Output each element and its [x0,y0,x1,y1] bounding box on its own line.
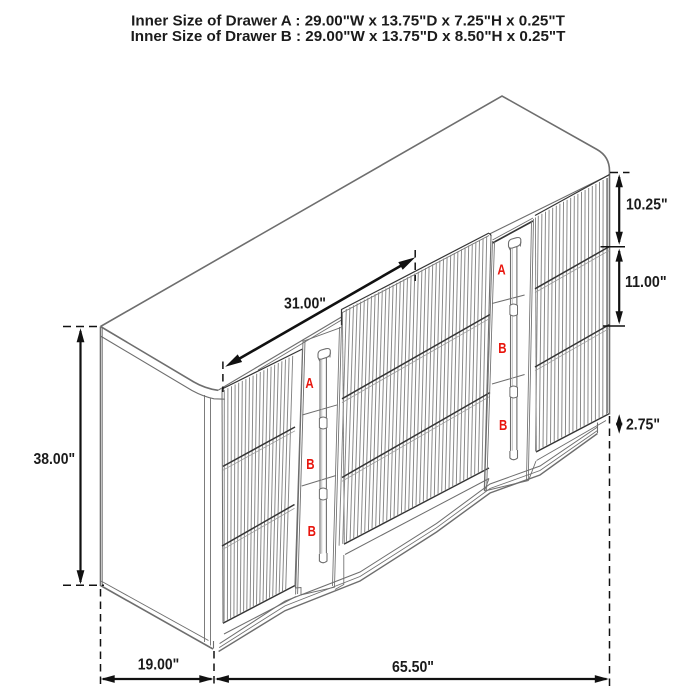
svg-text:A: A [497,263,506,279]
svg-text:B: B [499,418,507,434]
svg-text:19.00": 19.00" [138,657,180,674]
svg-text:Inner Size of Drawer B : 29.00: Inner Size of Drawer B : 29.00"W x 13.75… [131,28,567,45]
svg-text:10.25": 10.25" [626,197,668,214]
svg-text:11.00": 11.00" [625,274,667,291]
svg-text:38.00": 38.00" [34,451,76,468]
svg-text:A: A [305,376,314,392]
svg-text:65.50": 65.50" [392,659,434,676]
svg-text:B: B [306,457,314,473]
svg-text:2.75": 2.75" [626,417,660,434]
svg-text:B: B [308,524,316,540]
svg-text:31.00": 31.00" [284,296,326,313]
svg-text:B: B [498,341,506,357]
